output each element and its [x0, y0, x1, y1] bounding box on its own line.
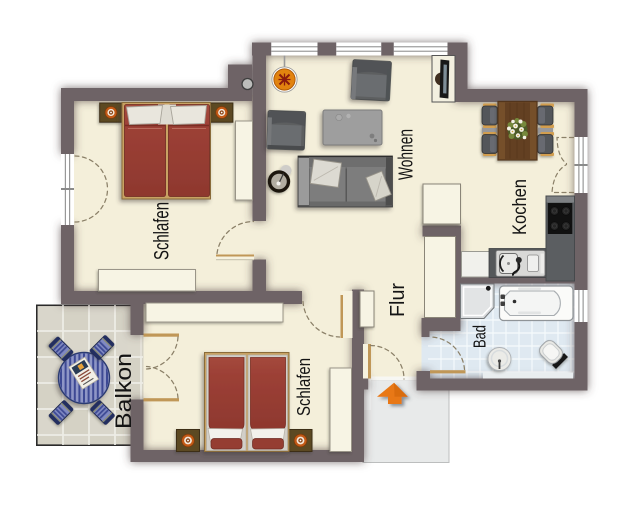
svg-text:Kochen: Kochen — [510, 179, 531, 235]
svg-text:Wohnen: Wohnen — [396, 129, 418, 180]
svg-text:Schlafen: Schlafen — [151, 202, 174, 260]
svg-text:Schlafen: Schlafen — [294, 358, 314, 416]
svg-text:Flur: Flur — [387, 283, 409, 317]
svg-text:Bad: Bad — [470, 325, 490, 348]
svg-text:Balkon: Balkon — [111, 353, 136, 429]
